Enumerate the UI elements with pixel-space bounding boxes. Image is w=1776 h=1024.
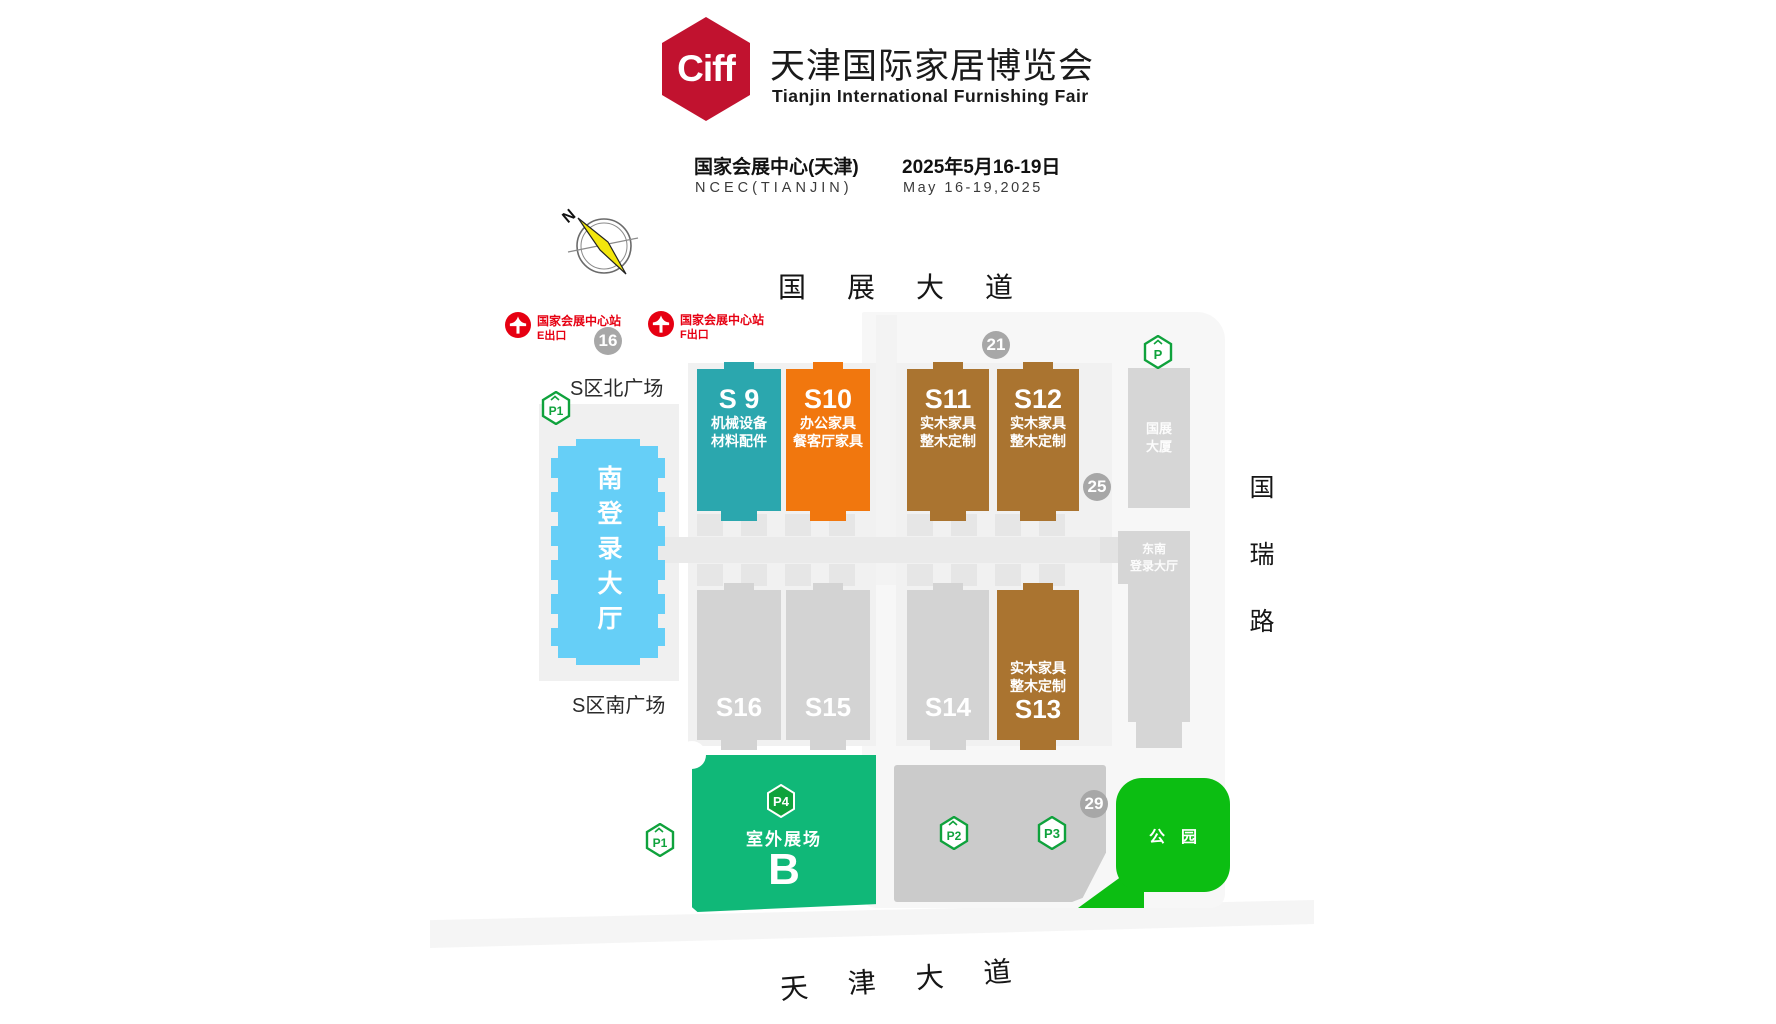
page-title: 天津国际家居博览会	[770, 38, 1094, 89]
svg-text:P3: P3	[1044, 826, 1060, 841]
hall-s15-id: S15	[805, 693, 851, 722]
page-subtitle: Tianjin International Furnishing Fair	[772, 86, 1089, 107]
svg-text:P1: P1	[653, 836, 668, 850]
venue-name-cn: 国家会展中心(天津)	[694, 152, 859, 179]
gate-16-marker: 16	[594, 327, 622, 355]
hall-s13-category: 整木定制	[1010, 678, 1066, 696]
road-label-tianjin-avenue: 天津大道	[778, 947, 1052, 1008]
hall-s11[interactable]: S11 实木家具 整木定制	[907, 369, 989, 511]
hall-s9[interactable]: S 9 机械设备 材料配件	[697, 369, 781, 511]
event-date-cn: 2025年5月16-19日	[902, 152, 1060, 179]
southeast-lobby-link	[1100, 537, 1120, 563]
compass-icon: N	[560, 202, 640, 288]
svg-text:P4: P4	[773, 794, 790, 809]
hall-s12-id: S12	[1014, 385, 1062, 415]
hall-s10-category: 办公家具	[800, 415, 856, 433]
hall-s14[interactable]: S14	[907, 590, 989, 740]
hall-s14-id: S14	[925, 693, 971, 722]
hall-s11-category: 整木定制	[920, 433, 976, 451]
parking-badge-p[interactable]: P	[1143, 335, 1173, 369]
hall-s12[interactable]: S12 实木家具 整木定制	[997, 369, 1079, 511]
metro-exit-e-label: E出口	[537, 327, 566, 343]
hall-s16[interactable]: S16	[697, 590, 781, 740]
hall-s13-id: S13	[1015, 695, 1061, 724]
building-southeast-lobby-label: 东南	[1130, 541, 1178, 557]
building-guozhan-tower-label: 国展	[1146, 420, 1172, 438]
compass-north-label: N	[560, 206, 579, 226]
hall-s11-id: S11	[925, 385, 972, 415]
building-guozhan-tower-label: 大厦	[1146, 438, 1172, 456]
building-southeast-lobby[interactable]: 东南 登录大厅	[1118, 531, 1190, 584]
road-label-guorui-road: 国瑞路	[1242, 474, 1278, 675]
ciff-logo-text: Ciff	[677, 48, 735, 90]
metro-icon[interactable]	[505, 312, 531, 338]
park-area[interactable]: 公园	[1116, 778, 1230, 892]
venue-map-page: Ciff 天津国际家居博览会 Tianjin International Fur…	[0, 0, 1776, 1024]
hall-s10-category: 餐客厅家具	[793, 433, 863, 451]
gate-29-marker: 29	[1080, 790, 1108, 818]
parking-badge-p1-south[interactable]: P1	[645, 823, 675, 857]
hall-s15[interactable]: S15	[786, 590, 870, 740]
park-label: 公园	[1133, 823, 1213, 847]
building-right-south-annex	[1136, 722, 1182, 748]
parking-badge-p3[interactable]: P3	[1037, 816, 1067, 850]
building-southeast-lobby-label: 登录大厅	[1130, 558, 1178, 574]
hall-s9-category: 机械设备	[711, 415, 767, 433]
hall-s10[interactable]: S10 办公家具 餐客厅家具	[786, 369, 870, 511]
svg-text:P2: P2	[947, 829, 962, 843]
metro-icon[interactable]	[648, 311, 674, 337]
hall-south-lobby[interactable]: 南登录大厅	[558, 446, 658, 658]
building-right-south	[1128, 584, 1190, 722]
svg-text:P: P	[1154, 347, 1163, 362]
hall-s13[interactable]: 实木家具 整木定制 S13	[997, 590, 1079, 740]
hall-s9-category: 材料配件	[711, 433, 767, 451]
plaza-north-label: S区北广场	[570, 372, 663, 401]
hall-s16-id: S16	[716, 693, 762, 722]
gate-25-marker: 25	[1083, 473, 1111, 501]
parking-lot-area[interactable]	[894, 765, 1106, 902]
hall-s13-category: 实木家具	[1010, 660, 1066, 678]
parking-badge-p1[interactable]: P1	[541, 391, 571, 425]
event-date-en: May 16-19,2025	[903, 180, 1043, 196]
outdoor-exhibition-area-b[interactable]: 室外展场 B	[692, 755, 876, 912]
building-guozhan-tower[interactable]: 国展 大厦	[1128, 368, 1190, 508]
metro-exit-f-label: F出口	[680, 326, 709, 342]
svg-text:P1: P1	[549, 404, 564, 418]
hall-s12-category: 整木定制	[1010, 433, 1066, 451]
outdoor-area-zone: B	[692, 845, 876, 895]
hall-s9-id: S 9	[719, 385, 760, 415]
hall-s12-category: 实木家具	[1010, 415, 1066, 433]
hall-s10-id: S10	[804, 385, 852, 415]
plaza-south-label: S区南广场	[572, 689, 665, 718]
venue-name-en: NCEC(TIANJIN)	[695, 180, 853, 196]
parking-badge-p4[interactable]: P4	[766, 784, 796, 818]
road-label-guozhan-avenue: 国展大道	[778, 266, 1054, 306]
hall-south-lobby-label: 南登录大厅	[558, 446, 658, 658]
parking-badge-p2[interactable]: P2	[939, 816, 969, 850]
central-corridor	[652, 537, 1130, 563]
outdoor-area-corner-notch	[678, 741, 706, 769]
hall-s11-category: 实木家具	[920, 415, 976, 433]
gate-21-marker: 21	[982, 331, 1010, 359]
ciff-logo: Ciff	[662, 17, 750, 121]
